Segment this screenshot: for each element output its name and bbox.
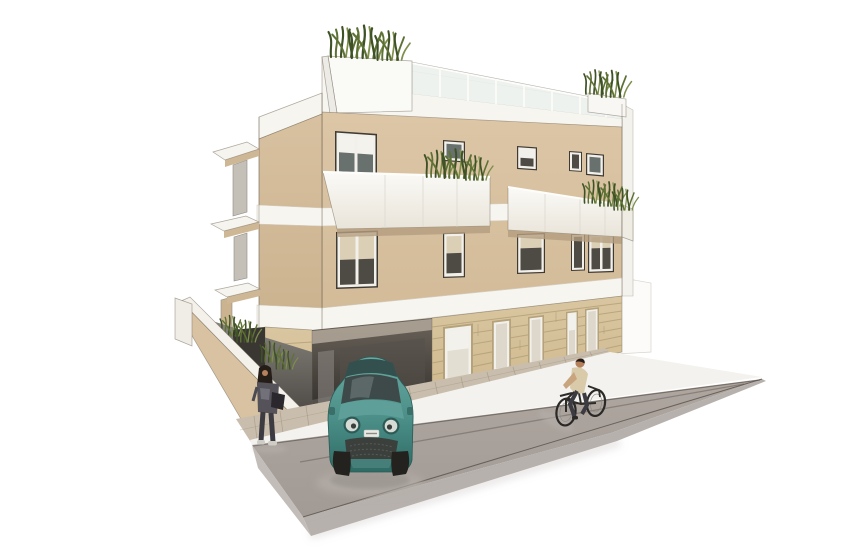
pedestrian-leg-left: [261, 412, 263, 441]
car-front-lip: [349, 459, 393, 468]
window-floor3-4: [569, 151, 582, 172]
pedestrian-leg-right: [271, 413, 273, 442]
balcony-left-front: [323, 172, 490, 229]
pedestrian-face: [262, 370, 268, 376]
tower-band-upper: [257, 205, 322, 226]
pedestrian-shoe-right: [268, 441, 277, 446]
window-floor2-1: [336, 231, 378, 289]
architectural-render: [0, 0, 860, 550]
cyclist-shoe: [572, 416, 578, 420]
window-ground-1: [443, 323, 473, 383]
car-wheel-right: [391, 451, 409, 476]
window-floor3-1: [335, 131, 377, 177]
pedestrian-bag: [271, 392, 285, 410]
roof-planter-left: [328, 56, 412, 113]
render-canvas: Architectural rendering - three-storey a…: [0, 0, 860, 550]
car-mirror-left: [329, 407, 335, 415]
pedestrian-shadow: [253, 445, 287, 453]
ramp-parapet-endcap: [175, 298, 192, 346]
window-floor2-3: [517, 233, 545, 274]
window-ground-4: [566, 311, 578, 360]
window-ground-3: [528, 315, 544, 366]
car-headlight-left-core: [351, 423, 356, 428]
pedestrian-top-highlight: [260, 388, 270, 400]
window-floor3-5: [586, 153, 604, 177]
car-headlight-right-core: [387, 424, 392, 429]
balcony-left: [323, 172, 490, 229]
window-floor2-2: [443, 232, 465, 278]
car-wheel-left: [333, 451, 351, 476]
stair-tower: [257, 93, 322, 331]
window-floor3-3: [517, 146, 537, 170]
car-mirror-right: [407, 407, 413, 415]
pedestrian-shoe-left: [257, 440, 265, 445]
window-ground-2: [492, 319, 511, 373]
